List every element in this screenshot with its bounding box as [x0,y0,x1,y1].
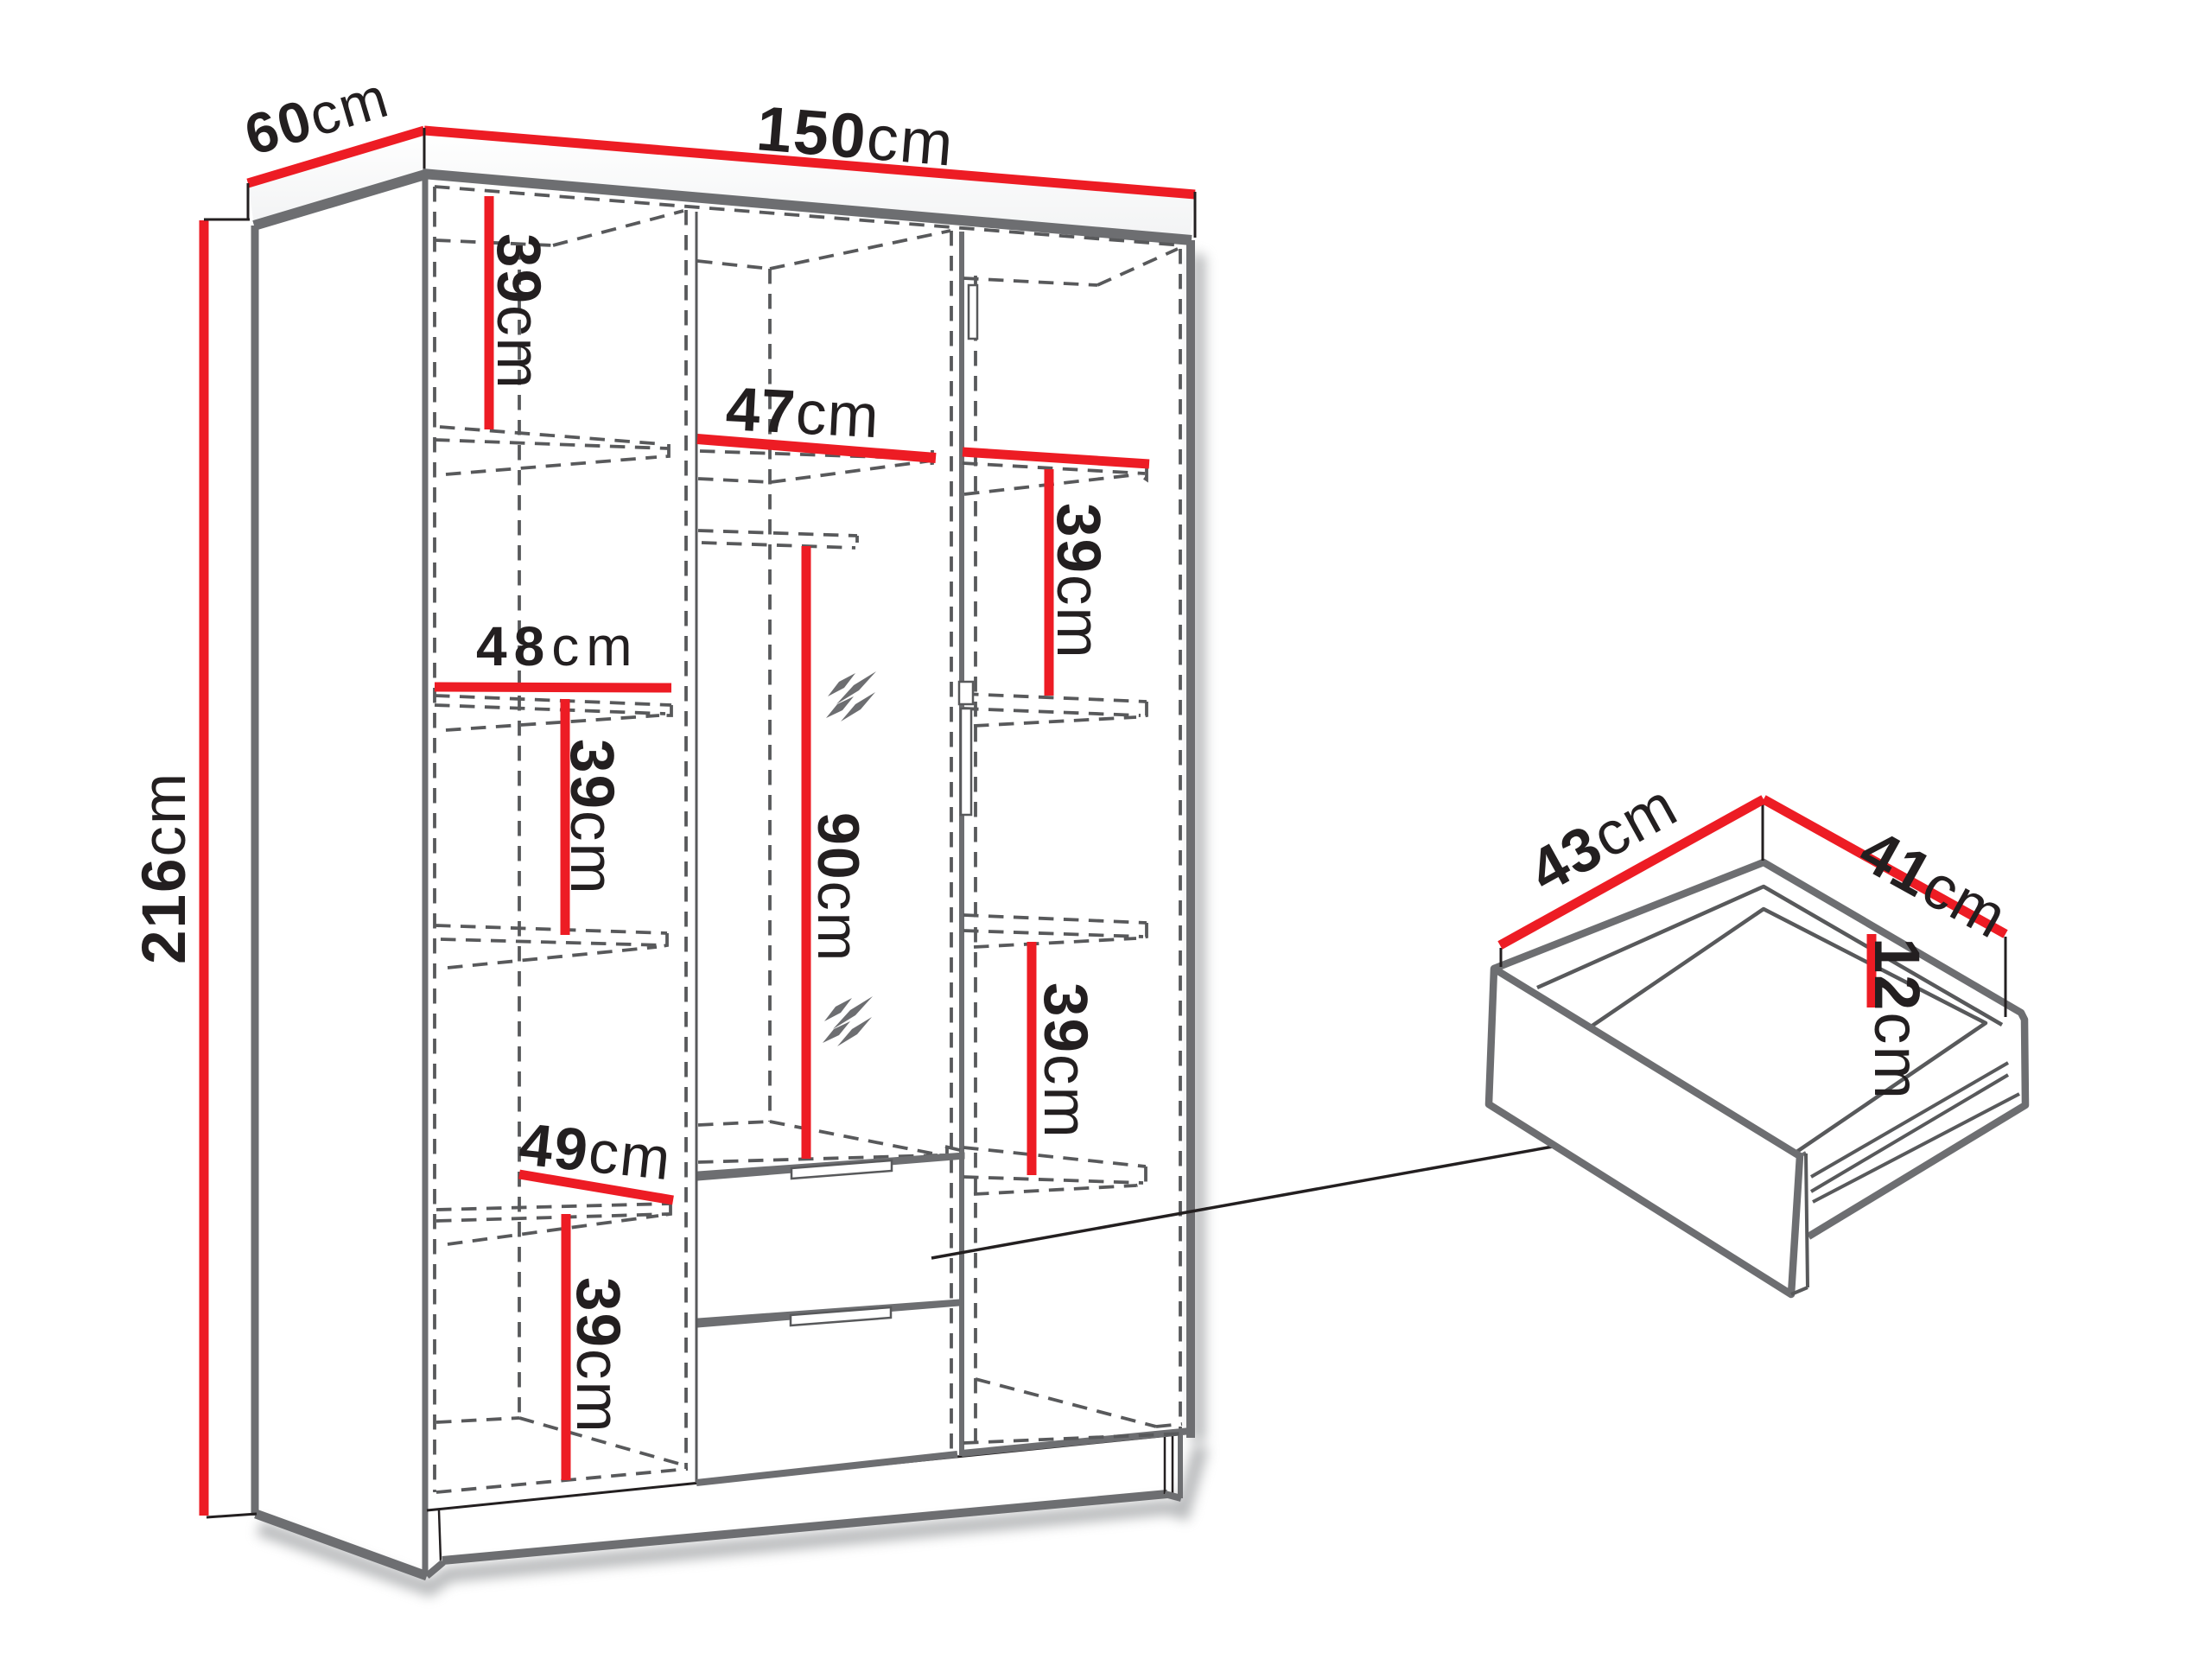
svg-text:90cm: 90cm [805,812,871,963]
svg-text:39cm: 39cm [1044,503,1112,660]
svg-text:39cm: 39cm [563,1277,632,1434]
svg-text:39cm: 39cm [1031,982,1099,1140]
svg-text:12cm: 12cm [1861,938,1933,1101]
svg-text:48cm: 48cm [476,615,639,677]
svg-text:216cm: 216cm [130,772,199,964]
svg-text:39cm: 39cm [484,233,552,391]
svg-text:39cm: 39cm [557,739,626,896]
svg-text:47cm: 47cm [724,375,881,451]
